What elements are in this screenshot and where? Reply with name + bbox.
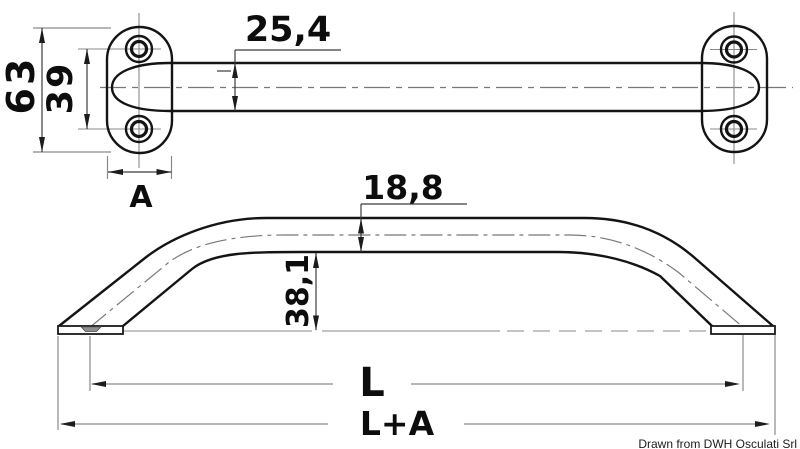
dimension-39: 39 — [41, 49, 90, 129]
dimension-38-1: 38,1 — [281, 253, 319, 331]
side-tube-centerline — [89, 235, 744, 328]
handrail-technical-drawing: 63 39 A 25,4 — [0, 0, 800, 449]
screw-holes — [126, 36, 747, 142]
arrow-up — [232, 63, 238, 78]
top-view-centerlines — [78, 12, 793, 168]
dim-text-25-4: 25,4 — [245, 10, 331, 50]
arrow-up — [39, 28, 45, 43]
arrow-up — [84, 49, 90, 64]
drawing-canvas: 63 39 A 25,4 — [0, 0, 800, 449]
dimension-18-8: 18,8 — [358, 168, 467, 252]
dimension-25-4: 25,4 — [217, 10, 341, 111]
arrow-down — [84, 114, 90, 129]
dimension-L-plus-A: L+A — [58, 335, 775, 443]
tube-upper-edge — [59, 218, 773, 326]
arrow-down — [232, 96, 238, 111]
arrow-down — [39, 137, 45, 152]
dim-text-A: A — [129, 180, 153, 215]
dim-text-L-plus-A: L+A — [360, 404, 435, 443]
tube-lower-edge — [123, 252, 712, 326]
arrow-up — [358, 219, 364, 234]
dim-text-63: 63 — [0, 56, 43, 115]
arrow-right — [157, 169, 172, 175]
arrow-left — [91, 381, 106, 387]
arrow-left — [60, 421, 75, 427]
arrow-left — [108, 169, 123, 175]
dim-text-18-8: 18,8 — [362, 168, 443, 207]
arrow-right — [725, 381, 740, 387]
arrow-down — [358, 237, 364, 252]
dim-text-38-1: 38,1 — [281, 254, 316, 328]
dimension-L: L — [90, 335, 743, 406]
arrow-right — [755, 421, 770, 427]
dim-text-39: 39 — [41, 62, 81, 115]
side-view: 18,8 38,1 L L+A — [58, 168, 775, 443]
credit-text: Drawn from DWH Osculati Srl — [638, 437, 797, 449]
dim-text-L: L — [359, 360, 385, 406]
right-foot-plate — [711, 326, 775, 334]
